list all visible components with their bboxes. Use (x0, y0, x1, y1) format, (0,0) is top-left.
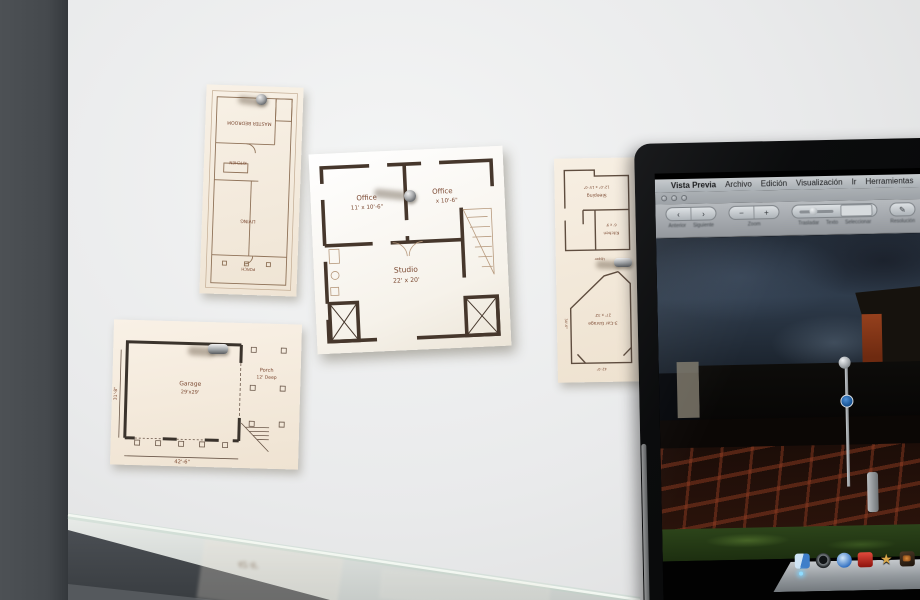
dock-icon-row: ★ (795, 551, 920, 569)
laptop-screen: Vista Previa Archivo Edición Visualizaci… (655, 168, 920, 600)
room-label: LIVING (240, 218, 256, 225)
finder-icon[interactable] (795, 553, 810, 568)
resolution-label: Resolución (890, 218, 915, 225)
photo-icon[interactable] (900, 551, 915, 566)
media-player-icon[interactable] (816, 553, 831, 568)
room-label: Office (432, 187, 453, 196)
zoom-in-button[interactable]: + (754, 206, 778, 218)
nav-group: ‹ › Anterior Siguiente (665, 206, 717, 237)
photo-viewer-content: ★ (656, 233, 920, 600)
room-dims: 12' Deep (256, 374, 277, 381)
dock: ★ (773, 548, 920, 592)
text-label: Texto (826, 220, 838, 226)
dimension-left: 31'-8" (113, 387, 119, 401)
room-label: 3-Car Garage (588, 320, 618, 327)
zoom-label: Zoom (748, 221, 761, 227)
menu-item-visualizacion[interactable]: Visualización (796, 178, 843, 188)
dimension-bottom: 42'-0" (596, 367, 607, 371)
room-dims: x 10'-6" (436, 198, 459, 205)
pushpin-icon (404, 190, 416, 202)
brick-plaza (660, 443, 920, 531)
move-label: Trasladar (798, 220, 819, 226)
room-label: PORCH (241, 267, 255, 272)
distant-building (677, 362, 700, 418)
zoom-window-icon[interactable] (681, 195, 687, 201)
room-label: Garage (179, 380, 201, 388)
laptop: Vista Previa Archivo Edición Visualizaci… (634, 138, 920, 600)
room-label: Studio (394, 265, 419, 275)
room-label: Kitchen (603, 231, 619, 236)
star-icon[interactable]: ★ (879, 552, 894, 567)
room-dims: 11' x 10'-6" (351, 204, 384, 211)
pencil-tool-button[interactable]: ✎ (890, 203, 914, 215)
room-label: MASTER BEDROOM (227, 119, 272, 127)
room-label: Porch (260, 367, 274, 373)
room-dims: 6' x 9' (606, 223, 617, 227)
floor-plan-upper-garage: 12'-0" x 15'-0" Sleeping 6' x 9' Kitchen… (554, 157, 642, 382)
desk-scene: 42'-6" MASTER BEDROOM KITCHEN LIVING POR… (0, 0, 920, 600)
menu-item-archivo[interactable]: Archivo (725, 180, 752, 190)
minimize-window-icon[interactable] (671, 195, 677, 201)
room-dims: 22' x 20' (393, 277, 420, 285)
room-dims: 12'-0" x 15'-0" (583, 185, 609, 189)
zoom-out-button[interactable]: − (729, 206, 754, 219)
resolution-group: ✎ Resolución (889, 202, 916, 233)
floor-plan-cottage: MASTER BEDROOM KITCHEN LIVING PORCH (199, 84, 303, 296)
low-dark-building (699, 360, 920, 421)
room-label: KITCHEN (229, 160, 247, 166)
pushpin-icon (614, 258, 632, 267)
zoom-group: − + Zoom (728, 205, 780, 236)
preview-toolbar: ‹ › Anterior Siguiente − + Zoom (655, 199, 920, 239)
forward-label: Siguiente (693, 222, 714, 228)
safari-icon[interactable] (837, 553, 852, 568)
tool-mode-group: Trasladar Texto Seleccionar (791, 203, 878, 235)
room-dims: 29'x29' (181, 389, 200, 396)
pushpin-icon (208, 344, 228, 354)
tool-slider[interactable] (799, 209, 833, 213)
red-drink-icon[interactable] (858, 552, 873, 567)
menu-item-herramientas[interactable]: Herramientas (865, 176, 913, 186)
running-app-indicator (799, 572, 803, 576)
laptop-side-edge (641, 444, 650, 600)
room-label: Sleeping (587, 192, 607, 198)
bollard (867, 472, 879, 512)
menu-item-app[interactable]: Vista Previa (671, 180, 716, 190)
slider-knob-icon[interactable] (809, 207, 817, 215)
modern-house-orange-wall (862, 314, 883, 368)
select-label: Seleccionar (845, 219, 871, 226)
floor-plan-garage: Garage 29'x29' Porch 12' Deep 42'-6" 31'… (110, 319, 302, 469)
dimension-bottom: 42'-6" (174, 459, 190, 465)
room-dims: 27' x 32' (595, 313, 612, 318)
forward-button[interactable]: › (691, 207, 715, 219)
reflection-dimension-text: 42'-6" (238, 559, 259, 569)
dimension-left: 34'-6" (564, 318, 568, 329)
back-label: Anterior (668, 223, 686, 229)
menu-item-ir[interactable]: Ir (851, 177, 856, 186)
menu-item-edicion[interactable]: Edición (761, 179, 787, 189)
tool-value-chip (840, 204, 872, 217)
floor-plan-studio: Office 11' x 10'-6" Office x 10'-6" Stud… (309, 146, 512, 355)
close-window-icon[interactable] (661, 195, 667, 201)
back-button[interactable]: ‹ (666, 208, 691, 221)
pushpin-icon (256, 94, 267, 105)
